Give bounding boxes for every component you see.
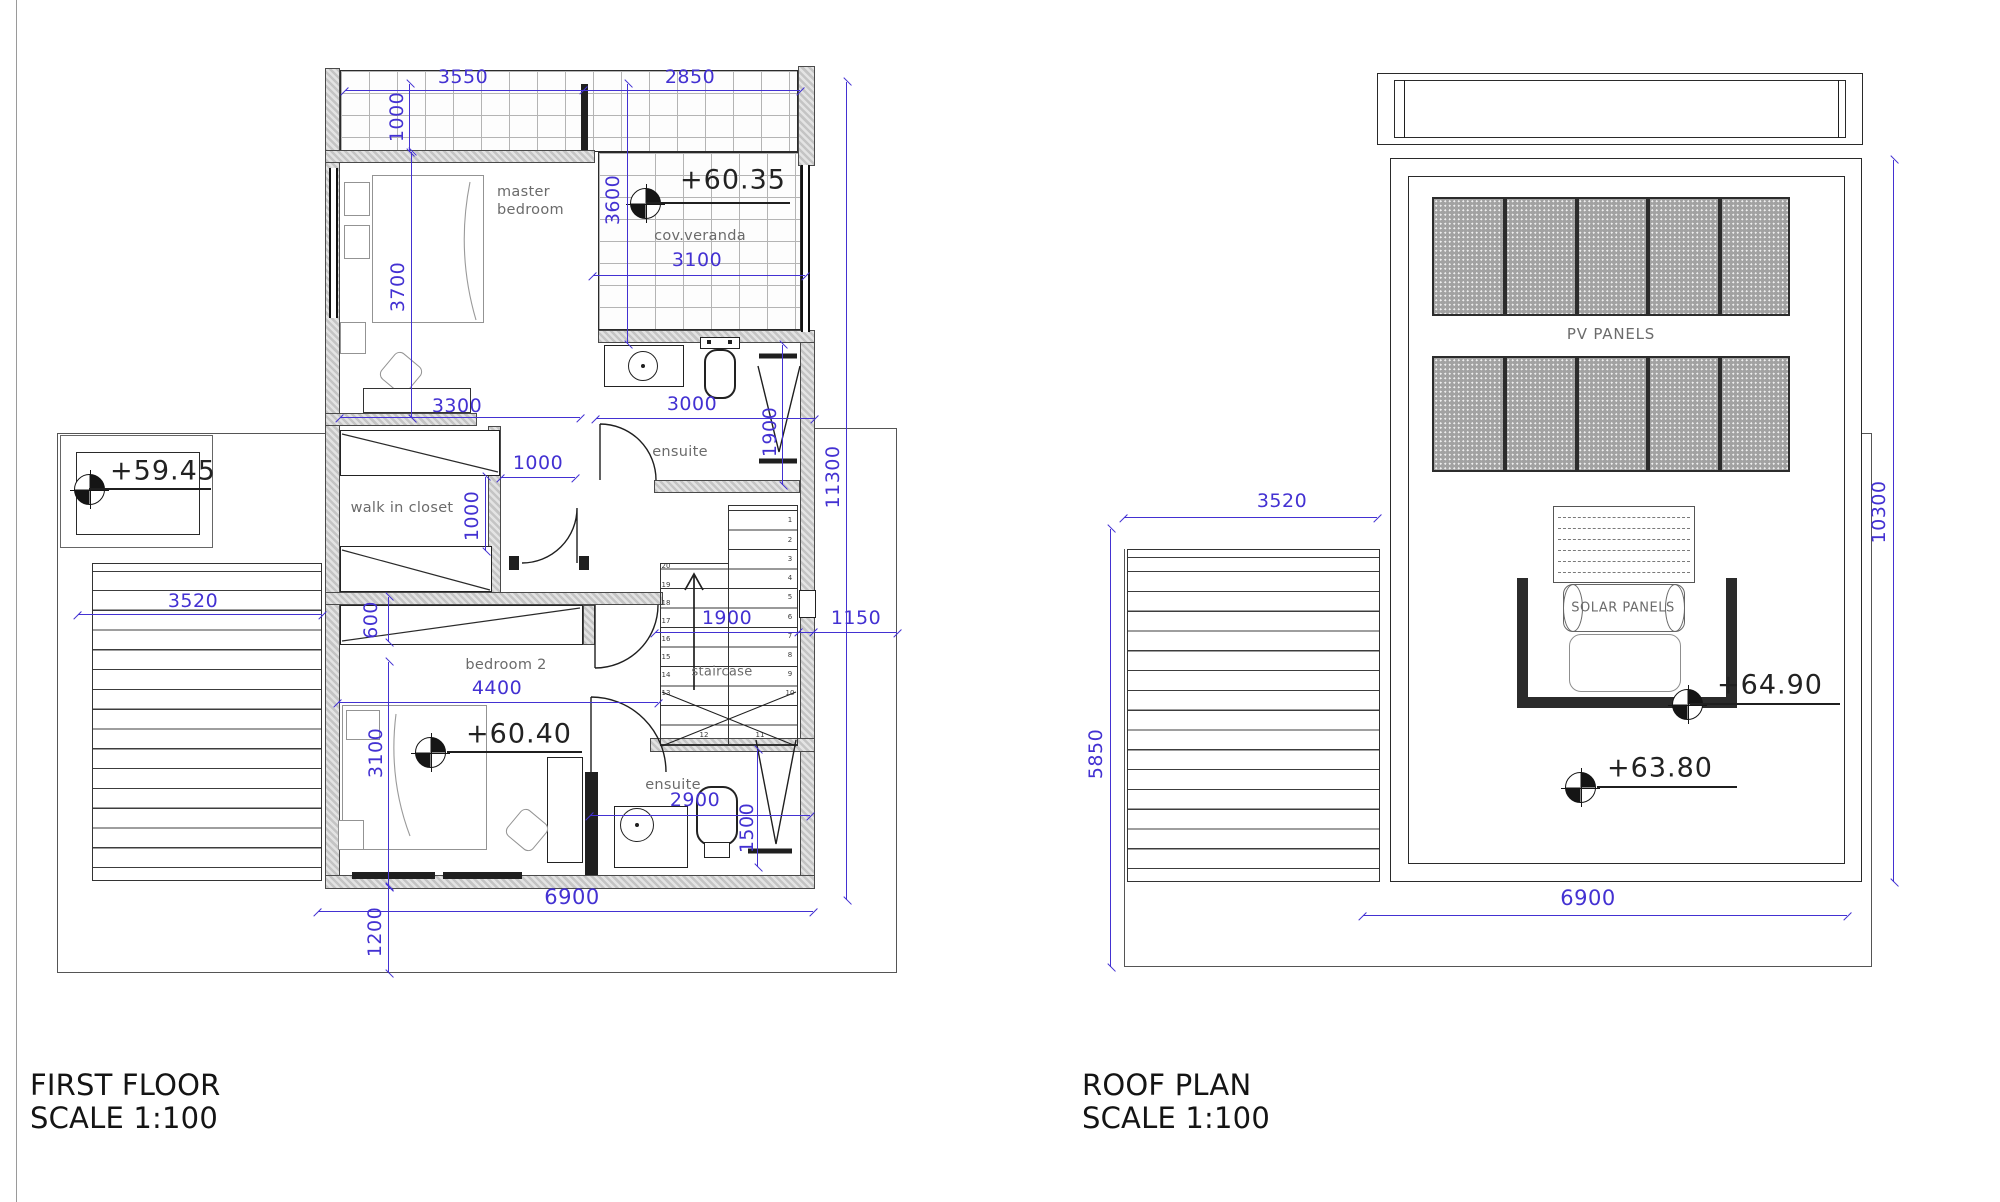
stair-number: 11 (753, 731, 767, 739)
dim-line-roof-pergola-width (1124, 517, 1377, 518)
roof-pergola-louvers (1127, 549, 1380, 882)
ff-boundary-bottom (57, 972, 897, 973)
label-solar-panels: SOLAR PANELS (1571, 601, 1674, 616)
stair-number: 3 (783, 555, 797, 563)
stair-number: 15 (659, 653, 673, 661)
dim-roof-width: 6900 (1560, 886, 1615, 910)
ff-master-pillow-2 (344, 225, 370, 259)
ff-window-bottom-2 (443, 872, 522, 879)
ff-top-veranda-divider (581, 84, 588, 152)
ff-boundary-top-right (815, 428, 896, 429)
collector-dash-line (1558, 517, 1690, 518)
dim-ensuite-width: 3000 (667, 393, 717, 415)
stair-number: 12 (697, 731, 711, 739)
sheet-border-left (16, 0, 17, 1202)
dim-side-gap: 1150 (831, 607, 881, 629)
dim-top-left: 3550 (438, 66, 488, 88)
dim-shower-len: 1900 (759, 407, 781, 457)
ff-level-marker-terrace (74, 474, 105, 505)
dim-master-width: 3300 (432, 395, 482, 417)
dim-total-width: 6900 (544, 885, 599, 909)
dim-top-right: 2850 (665, 66, 715, 88)
ff-ensuite1-toilet-bowl (704, 349, 736, 399)
label-ensuite-top: ensuite (652, 444, 708, 460)
ff-master-pillow-1 (344, 182, 370, 216)
dim-roof-pergola-height: 5850 (1085, 729, 1107, 779)
dim-line-roof-height (1893, 160, 1894, 882)
roof-top-band-inner (1394, 80, 1846, 138)
label-master-line1: master (497, 183, 564, 201)
collector-dash-line (1558, 561, 1690, 562)
dim-wardrobe-depth: 600 (360, 601, 382, 639)
ff-wall-ensuite2-left (585, 772, 598, 875)
ff-title: FIRST FLOOR (30, 1068, 221, 1102)
ff-level-bedroom: +60.40 (466, 719, 572, 750)
stair-number: 9 (783, 670, 797, 678)
label-pv-panels: PV PANELS (1567, 325, 1655, 343)
roof-band-line-left (1404, 80, 1405, 138)
drawing-sheet: +59.45 (0, 0, 2000, 1202)
ff-bedroom2-nightstand (338, 820, 364, 850)
dim-total-height: 11300 (822, 446, 844, 509)
dim-line-veranda-height (409, 84, 410, 152)
roof-level-marker-deck (1565, 772, 1596, 803)
stair-number: 19 (659, 581, 673, 589)
ff-ensuite1-sink-dot (641, 364, 645, 368)
dim-line-shower-len (782, 345, 783, 485)
roof-boundary-top-right (1862, 433, 1872, 434)
collector-dash-line (1558, 572, 1690, 573)
dim-line-roof-width (1363, 915, 1847, 916)
dim-pergola-width: 3520 (168, 590, 218, 612)
pv-divider (1503, 356, 1507, 472)
label-master-bedroom: master bedroom (497, 183, 564, 219)
ff-ensuite2-sink-dot (635, 823, 639, 827)
roof-title: ROOF PLAN (1082, 1068, 1251, 1102)
label-cov-veranda: cov.veranda (654, 228, 746, 244)
ff-bedroom2-desk (547, 757, 583, 863)
pv-divider (1646, 356, 1650, 472)
ff-closet-wardrobe-bottom (340, 546, 492, 592)
stair-number: 8 (783, 651, 797, 659)
ff-boundary-left (57, 433, 58, 973)
dim-line-bedroom2-height (388, 662, 389, 887)
dim-line-closet-depth (485, 477, 486, 551)
roof-boundary-left (1124, 549, 1125, 967)
dim-line-top-chain (345, 90, 800, 91)
stair-number: 16 (659, 635, 673, 643)
dim-closet-depth: 1000 (461, 491, 483, 541)
stair-number: 5 (783, 593, 797, 601)
pv-divider (1575, 356, 1579, 472)
solar-collector (1553, 506, 1695, 583)
dim-line-wardrobe-depth (388, 597, 389, 642)
dim-line-veranda-depth (627, 84, 628, 344)
ff-boundary-right (896, 428, 897, 973)
pv-divider (1503, 197, 1507, 316)
ff-wall-top-right (798, 66, 815, 166)
pv-divider (1575, 197, 1579, 316)
roof-level-underline-support (1690, 703, 1840, 705)
ff-level-marker-bedroom (415, 737, 446, 768)
ff-level-underline-bedroom (447, 751, 582, 753)
ff-scale: SCALE 1:100 (30, 1101, 218, 1135)
pv-array-row2 (1432, 356, 1790, 472)
stair-number: 10 (783, 689, 797, 697)
label-staircase: staircase (691, 665, 752, 680)
dim-master-height: 3700 (387, 262, 409, 312)
ff-master-nightstand (340, 322, 366, 354)
dim-line-ensuite2-width (590, 815, 810, 816)
dim-ensuite2-width: 2900 (670, 789, 720, 811)
label-bedroom2: bedroom 2 (465, 657, 546, 673)
roof-boundary-b ottom (1124, 966, 1872, 967)
dim-line-total-height (846, 82, 847, 900)
label-master-line2: bedroom (497, 201, 564, 219)
dim-line-bottom-offset (388, 887, 389, 973)
dim-line-closet-opening (501, 477, 575, 478)
ff-window-stair-right (799, 590, 816, 618)
dim-shower2-len: 1500 (736, 803, 758, 853)
stair-number: 13 (659, 689, 673, 697)
stair-number: 18 (659, 599, 673, 607)
stair-number: 6 (783, 613, 797, 621)
dim-veranda-depth: 3600 (602, 175, 624, 225)
dim-line-roof-pergola-height (1110, 529, 1111, 967)
dim-line-stair-gap-chain (655, 632, 897, 633)
dim-line-bedroom2-width (338, 702, 658, 703)
ff-ensuite2-toilet-base (704, 842, 730, 858)
ff-ensuite1-toilet-tank (700, 337, 740, 349)
ff-window-veranda-right (801, 165, 810, 332)
pv-divider (1646, 197, 1650, 316)
ff-level-underline-veranda (646, 202, 790, 204)
dim-veranda-width: 3100 (672, 249, 722, 271)
dim-veranda-height: 1000 (386, 92, 408, 142)
ff-level-underline-terrace (89, 488, 211, 490)
collector-dash-line (1558, 528, 1690, 529)
stair-number: 14 (659, 671, 673, 679)
ff-closet-wardrobe-top (340, 430, 500, 476)
dim-bottom-offset: 1200 (364, 907, 386, 957)
dim-bedroom2-height: 3100 (365, 728, 387, 778)
ff-boundary-top-left (57, 433, 325, 434)
roof-scale: SCALE 1:100 (1082, 1101, 1270, 1135)
dim-line-master-width (340, 417, 580, 418)
dim-line-total-width (318, 911, 813, 912)
label-walk-in-closet: walk in closet (351, 500, 454, 516)
stair-number: 1 (783, 516, 797, 524)
collector-dash-line (1558, 539, 1690, 540)
collector-dash-line (1558, 550, 1690, 551)
ff-ensuite1-toilet-dot1 (707, 340, 711, 344)
ff-level-veranda: +60.35 (680, 165, 786, 196)
dim-line-pergola-width (78, 614, 322, 615)
ff-wall-master-top (325, 150, 595, 163)
roof-level-support: +64.90 (1717, 670, 1823, 701)
dim-roof-pergola-width: 3520 (1257, 490, 1307, 512)
stair-number: 17 (659, 617, 673, 625)
solar-unit-box (1569, 634, 1681, 692)
roof-band-line-right (1838, 80, 1839, 138)
dim-bedroom2-width: 4400 (472, 677, 522, 699)
ff-wall-wardrobe-end (583, 605, 595, 645)
dim-line-veranda-width (593, 275, 805, 276)
dim-stair-width: 1900 (702, 607, 752, 629)
stair-number: 2 (783, 536, 797, 544)
roof-level-deck: +63.80 (1607, 753, 1713, 784)
ff-window-master-left (329, 168, 338, 318)
pv-divider (1718, 197, 1722, 316)
dim-roof-height: 10300 (1868, 481, 1890, 544)
pv-divider (1718, 356, 1722, 472)
ff-ensuite1-toilet-dot2 (728, 340, 732, 344)
dim-line-master-height (411, 152, 412, 418)
stair-number: 4 (783, 574, 797, 582)
stair-number: 20 (659, 562, 673, 570)
roof-level-underline-deck (1597, 786, 1737, 788)
ff-level-terrace: +59.45 (110, 456, 216, 487)
pv-array-row1 (1432, 197, 1790, 316)
ff-window-bottom-1 (352, 872, 435, 879)
dim-closet-opening: 1000 (513, 452, 563, 474)
